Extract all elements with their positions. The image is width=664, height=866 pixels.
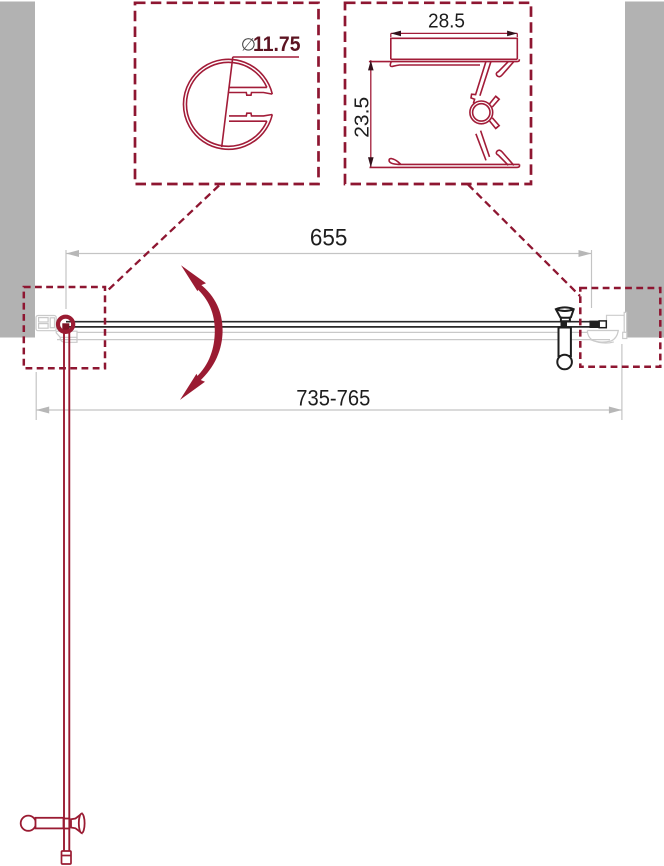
svg-text:28.5: 28.5	[428, 10, 465, 32]
svg-text:655: 655	[310, 224, 348, 251]
svg-text:11.75: 11.75	[253, 33, 301, 56]
svg-text:735-765: 735-765	[296, 385, 370, 410]
svg-text:23.5: 23.5	[352, 97, 374, 138]
